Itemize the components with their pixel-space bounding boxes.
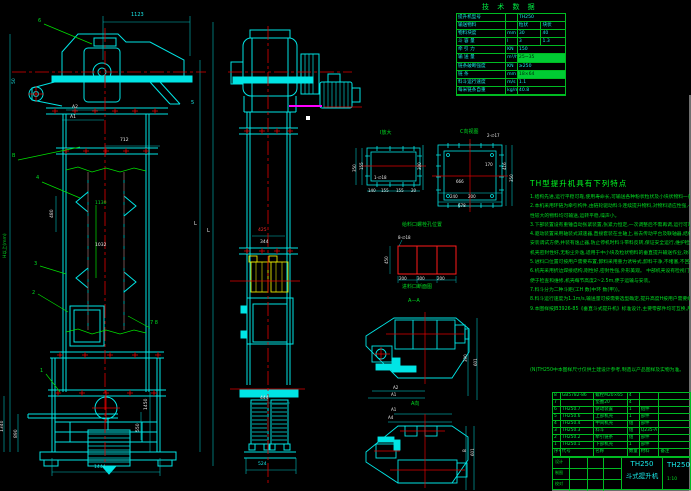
drawing-scale: 1:10 — [667, 477, 677, 482]
parts-list-cell: 部件 — [640, 421, 660, 428]
parts-list-cell: 6 — [553, 407, 561, 414]
parts-list-cell: 牵引链条 — [594, 435, 628, 442]
tech-table-cell: 提升机型号 — [457, 14, 506, 22]
features-heading: TH型提升机具有下列特点 — [530, 178, 690, 189]
parts-list-cell: TH250.1 — [561, 442, 595, 449]
parts-list-cell: 螺栓M20×65 — [594, 393, 628, 400]
parts-list-cell: 1 — [628, 407, 640, 414]
parts-list-table: 8GB5782-86螺栓M20×6547垫圈2046TH250.7驱动装置1组件… — [552, 392, 691, 458]
parts-list-cell — [659, 414, 690, 421]
tech-table-cell: 1.1 — [518, 79, 565, 87]
tech-table-cell: 链 条 — [457, 71, 506, 79]
dim-344: 344 — [260, 240, 269, 245]
dim-444: 444 — [260, 396, 269, 401]
feature-line: 便于检查和维修,机壳每节高度2~2.5m,便于运输与安装。 — [530, 277, 690, 286]
parts-list-cell — [561, 400, 595, 407]
parts-list-cell: 7 — [553, 400, 561, 407]
parts-list-cell: 组 — [628, 435, 640, 442]
dim-450: 450 — [384, 256, 389, 264]
parts-list-row: 3TH250.3料斗组Q235-A — [553, 428, 690, 435]
balloon-3: 3 — [34, 262, 37, 267]
dim-1450: 1450 — [144, 399, 149, 410]
dim-890: 890 — [14, 429, 19, 438]
tech-table-cell: KN — [506, 46, 518, 54]
tech-table-cell: m³/h — [506, 54, 518, 62]
parts-list-cell: 2 — [553, 435, 561, 442]
front-elevation-centerlines — [12, 28, 206, 466]
dim-240: 240 — [450, 194, 458, 199]
balloon-b: B — [12, 154, 15, 159]
dim-b-planb: B — [462, 449, 467, 452]
parts-list-cell — [659, 400, 690, 407]
tech-table-cell: 物料块度 — [457, 30, 506, 38]
dim-a1-planb: A1 — [391, 407, 396, 412]
detail-title-inlet-section: 进料口断面图 — [402, 285, 432, 290]
sign-label-audit: 校对 — [555, 481, 563, 487]
parts-list-cell — [659, 407, 690, 414]
tech-table-cell: 输 送 量 — [457, 54, 506, 62]
dim-416: 416 — [502, 162, 507, 170]
parts-list-row: 2TH250.2牵引链条组部件 — [553, 435, 690, 442]
parts-list-row: 7垫圈204 — [553, 400, 690, 407]
parts-list-row: 1TH250.1下部机壳1部件 — [553, 442, 690, 449]
feature-line: 1.结构先进,运行平稳可靠,使用寿命长,可输送各种粉状粒状及小块状物料一般。 — [530, 193, 690, 202]
dim-1444: 1444 — [94, 465, 105, 470]
parts-list-cell: 1 — [553, 442, 561, 449]
dim-712: 712 — [120, 138, 129, 143]
feature-line: 4.驱动装置采用轴装式减速器,直接套装在主轴上,省去传动平台及联轴器,结构紧凑,… — [530, 230, 690, 239]
dim-480: 480 — [50, 209, 55, 218]
tech-table-title: 技 术 数 据 — [482, 2, 538, 12]
dim-L-outer: L — [194, 222, 197, 227]
parts-list-cell: 组 — [628, 421, 640, 428]
balloon-5: 5 — [191, 101, 194, 106]
features-text-block: TH型提升机具有下列特点 1.结构先进,运行平稳可靠,使用寿命长,可输送各种粉状… — [530, 178, 690, 378]
dim-1032: 1032 — [95, 243, 106, 248]
technical-data-table: 提升机型号TH250输送物料粒状块状物料块度mm3040斗 容 量l31.3牵 … — [456, 13, 566, 96]
dim-a2-plan: A2 — [393, 385, 398, 390]
dim-300b: 300 — [417, 276, 425, 281]
plan-b-centerlines — [374, 414, 465, 488]
tech-table-row: 每米链条自重kg/m40.8 — [457, 87, 565, 95]
front-elevation-dimension-lines — [4, 16, 213, 476]
balloon-6: 6 — [38, 19, 41, 24]
feature-line: 2.本机采用环链为牵引构件,由链轮驱动料斗连续提升物料,对物料适应性强,一般块状… — [530, 202, 690, 211]
tech-table-row: 物料块度mm3040 — [457, 30, 565, 38]
tech-table-cell: 链条破断强度 — [457, 63, 506, 71]
parts-list-cell: 驱动装置 — [594, 407, 628, 414]
flange-C-centerlines — [432, 139, 508, 212]
tech-table-cell: 150 — [518, 46, 565, 54]
parts-list-row: 5TH250.6上部机壳1部件 — [553, 414, 690, 421]
tech-table-cell: 斗 容 量 — [457, 38, 506, 46]
dim-200c: 200 — [437, 276, 445, 281]
dim-a1-plan: A1 — [391, 392, 396, 397]
dim-601: 601 — [473, 358, 478, 366]
tech-table-row: 提升机型号TH250 — [457, 14, 565, 22]
flange-section-I — [356, 145, 423, 191]
dim-a1: A1 — [70, 115, 76, 120]
tech-table-cell: l — [506, 38, 518, 46]
head-plan-view-b — [366, 414, 474, 490]
side-elevation-buckets — [249, 256, 288, 292]
parts-list-cell: 4 — [628, 400, 640, 407]
parts-list-cell: 下部机壳 — [594, 442, 628, 449]
view-title-C: C向视图 — [460, 130, 479, 135]
parts-list-cell: TH250.6 — [561, 414, 595, 421]
dim-a2: A2 — [72, 105, 78, 110]
parts-list-row: 6TH250.7驱动装置1组件 — [553, 407, 690, 414]
dim-155b: 155 — [396, 188, 404, 193]
dim-50: 50 — [12, 78, 17, 84]
tech-table-cell: 18×64 — [518, 71, 565, 79]
parts-list-cell — [659, 435, 690, 442]
tech-table-row: 链 条mm18×64 — [457, 71, 565, 79]
tech-table-cell: mm — [506, 30, 518, 38]
tech-table-row: 料斗运行速度m/s1.1 — [457, 79, 565, 87]
parts-list-cell — [659, 428, 690, 435]
tech-table-cell: 30 — [518, 30, 542, 38]
tech-table-cell: 输送物料 — [457, 22, 506, 30]
tech-table-cell: 牵 引 力 — [457, 46, 506, 54]
balloon-2: 2 — [32, 291, 35, 296]
plan-a-centerlines — [374, 312, 464, 384]
balloon-7-8: 7 8 — [150, 321, 158, 326]
sign-label-design: 设计 — [555, 459, 563, 465]
parts-list-cell: TH250.4 — [561, 421, 595, 428]
feature-line: 9.本图样按JB3926-85《垂直斗式提升机》标准设计,主要零部件均可互换,用… — [530, 305, 690, 314]
parts-list-cell: 8 — [553, 393, 561, 400]
tech-table-cell: 块状 — [541, 22, 565, 30]
dim-L-inner: L — [207, 229, 210, 234]
dim-1123: 1123 — [131, 13, 144, 18]
tech-table-cell — [506, 14, 518, 22]
parts-list-cell: 部件 — [640, 435, 660, 442]
parts-list-cell: GB5782-86 — [561, 393, 595, 400]
tech-table-cell — [506, 22, 518, 30]
drawing-name: 斗式提升机 — [622, 470, 662, 480]
parts-list-cell: TH250.3 — [561, 428, 595, 435]
tech-table-row: 输送物料粒状块状 — [457, 22, 565, 30]
dim-524: 524 — [258, 462, 267, 467]
cad-drawing-canvas: 技 术 数 据 提升机型号TH250输送物料粒状块状物料块度mm3040斗 容 … — [0, 0, 691, 491]
view-label-a-a: A—A — [408, 299, 420, 304]
parts-list-cell — [640, 400, 660, 407]
feature-line: 3.下部装置设有重锤自动张紧装置,张紧力恒定,一次调整后不需再调,运行可靠不跳链… — [530, 221, 690, 230]
dim-550: 550 — [136, 423, 141, 432]
dim-1130: 1130 — [95, 201, 106, 206]
feature-line: 5.进料口位置可按用户需要布置,卸料采用重力诱导式,卸料干净,不堵塞,不回料。 — [530, 258, 690, 267]
parts-list-cell: 1 — [628, 442, 640, 449]
model-number: TH250 — [622, 460, 662, 468]
dim-300: 300 — [417, 162, 422, 170]
parts-list-cell: Q235-A — [640, 428, 660, 435]
parts-list-cell — [640, 393, 660, 400]
tech-table-cell: KN — [506, 63, 518, 71]
tech-table-cell: mm — [506, 71, 518, 79]
parts-list-cell: 料斗 — [594, 428, 628, 435]
tech-table-cell: 每米链条自重 — [457, 87, 506, 95]
tech-table-cell: TH250 — [518, 14, 565, 22]
dim-155c: 155 — [359, 162, 364, 170]
tech-table-cell: 40 — [541, 30, 565, 38]
tech-table-cell: 3 — [518, 38, 542, 46]
parts-list-cell: 上部机壳 — [594, 414, 628, 421]
dim-a4-planb: A4 — [388, 415, 393, 420]
note-8-d18: 8-∅18 — [398, 235, 411, 240]
dim-200a: 200 — [468, 194, 476, 199]
tech-table-cell: ≥250 — [518, 63, 565, 71]
view-title-I: Ⅰ放大 — [380, 131, 391, 136]
title-block: 设计 制图 校对 TH250 斗式提升机 TH250 1:10 — [552, 456, 691, 490]
feature-line: 性较大的物料均可输送,运转平稳,噪声小。 — [530, 212, 690, 221]
parts-list-cell — [659, 421, 690, 428]
parts-list-cell: 4 — [553, 421, 561, 428]
head-plan-view-a — [366, 318, 477, 400]
parts-list-cell: 部件 — [640, 414, 660, 421]
tech-table-cell: 料斗运行速度 — [457, 79, 506, 87]
feature-line: 机壳密封性好,无粉尘外逸,适用于中小块及粒状物料的垂直提升输送作业,效率高。 — [530, 249, 690, 258]
view-caption-a: A向 — [411, 402, 419, 407]
side-elevation-view — [231, 30, 360, 458]
parts-list-row: 4TH250.4中间机壳组部件 — [553, 421, 690, 428]
note-1-d18: 1-∅18 — [374, 175, 387, 180]
tech-table-row: 斗 容 量l31.3 — [457, 38, 565, 46]
tech-table-cell: m/s — [506, 79, 518, 87]
parts-list-cell: 组 — [628, 428, 640, 435]
title-block-signature-grid: 设计 制图 校对 — [553, 457, 622, 489]
parts-list-cell: TH250.7 — [561, 407, 595, 414]
parts-list-cell — [659, 442, 690, 449]
dim-601b: 601 — [470, 448, 475, 456]
tech-table-cell: 25~35 — [518, 54, 565, 62]
dim-350-left: 350 — [352, 164, 357, 172]
balloon-1: 1 — [40, 369, 43, 374]
feature-line: 6.机壳采用折边焊接结构,刚性好,密封性强,外形美观。 中部机壳设有检视门, — [530, 267, 690, 276]
features-footnote: (N)TH250中本图样尺寸仅供土建设计参考,制造以产品图样及实物为准。 — [530, 366, 691, 373]
parts-list-cell: 垫圈20 — [594, 400, 628, 407]
dim-350b: 350 — [509, 174, 514, 182]
detail-title-bolt-holes: 给料口螺栓孔位置 — [402, 223, 442, 228]
dim-425: 425 — [258, 228, 267, 233]
tech-table-row: 牵 引 力KN150 — [457, 46, 565, 54]
title-block-drawing-number: TH250 1:10 — [663, 457, 690, 489]
feature-line: 8.料斗运行速度为1.1m/s,输送量可按需要选型确定,提升高度H按用户需要组合… — [530, 295, 690, 304]
tech-table-row: 链条破断强度KN≥250 — [457, 63, 565, 71]
tech-table-cell: 1.3 — [541, 38, 565, 46]
dim-678: 678 — [458, 203, 466, 208]
tech-table-cell: kg/m — [506, 87, 518, 95]
balloon-4: 4 — [36, 176, 39, 181]
grip-point[interactable] — [306, 116, 310, 120]
dim-1340: 1340 — [0, 421, 5, 432]
dim-140: 140 — [368, 188, 376, 193]
drawing-number: TH250 — [667, 461, 690, 469]
dim-666: 666 — [456, 179, 464, 184]
parts-list-cell: 中间机壳 — [594, 421, 628, 428]
tech-table-row: 输 送 量m³/h25~35 — [457, 54, 565, 62]
parts-list-cell — [659, 393, 690, 400]
dim-20: 20 — [411, 188, 416, 193]
feature-line: 安装调试方便,并装有逸止器,防止停机时料斗带料反转,保证安全运行,维护检修方便, — [530, 239, 690, 248]
note-2-d17: 2-∅17 — [487, 133, 500, 138]
tech-table-cell: 粒状 — [518, 22, 542, 30]
dim-155a: 155 — [381, 188, 389, 193]
parts-list-cell: 1 — [628, 414, 640, 421]
title-block-drawing-name: TH250 斗式提升机 — [622, 457, 663, 489]
parts-list-cell: 3 — [553, 428, 561, 435]
dim-390: 390 — [463, 354, 468, 362]
dim-total-height: H以上(mm) — [3, 233, 8, 258]
parts-list-cell: 5 — [553, 414, 561, 421]
tech-table-cell: 40.8 — [518, 87, 565, 95]
feature-line: 7.料斗分为二种斗距(工H 数(中环 数(甲))。 — [530, 286, 690, 295]
sign-label-check: 制图 — [555, 470, 563, 476]
dim-200b: 200 — [399, 276, 407, 281]
parts-list-row: 8GB5782-86螺栓M20×654 — [553, 393, 690, 400]
parts-list-cell: 4 — [628, 393, 640, 400]
parts-list-cell: TH250.2 — [561, 435, 595, 442]
parts-list-cell: 组件 — [640, 407, 660, 414]
dim-170: 170 — [485, 162, 493, 167]
parts-list-cell: 部件 — [640, 442, 660, 449]
